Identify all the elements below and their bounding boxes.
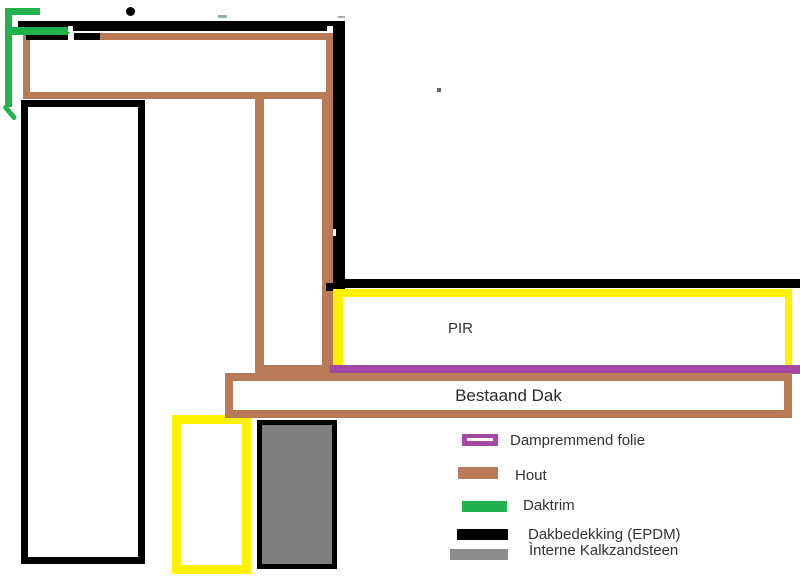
paint-dash: [218, 15, 227, 18]
daktrim-lower-arm: [5, 27, 70, 35]
membrane-gap: [68, 33, 74, 40]
daktrim-gap: [68, 26, 73, 32]
wood-vertical-beam: [255, 99, 333, 374]
outer-wall-outline: [21, 100, 145, 564]
epdm-roof-membrane: [333, 279, 800, 288]
legend-swatch-dakbedekking-epdm: [457, 529, 508, 540]
pir-insulation-block: [172, 415, 251, 574]
epdm-vertical-membrane: [333, 21, 345, 291]
daktrim-top-arm: [5, 8, 40, 15]
daktrim-vertical: [5, 8, 12, 107]
legend-label-dampremmend-folie: Dampremmend folie: [510, 433, 645, 449]
legend-label-interne-kalkzandsteen: Ìnterne Kalkzandsteen: [529, 543, 678, 559]
roof-detail-diagram: PIR Bestaand Dak Dampremmend folie Hout …: [0, 0, 800, 576]
membrane-notch: [333, 229, 336, 236]
existing-roof-layer: Bestaand Dak: [225, 373, 792, 418]
pir-label: PIR: [448, 321, 473, 337]
legend-swatch-hout: [458, 467, 498, 479]
wood-top-beam: [23, 33, 333, 99]
kalkzandsteen-wall: [257, 420, 337, 569]
paint-dot: [126, 7, 135, 16]
legend-swatch-dampremmend-folie: [462, 434, 498, 446]
legend-label-dakbedekking-epdm: Dakbedekking (EPDM): [528, 527, 681, 543]
legend-label-hout: Hout: [515, 468, 547, 484]
legend-swatch-daktrim: [462, 501, 507, 512]
swatch-stripe: [467, 438, 493, 441]
existing-roof-label: Bestaand Dak: [455, 388, 562, 404]
paint-dot: [437, 88, 441, 92]
legend-swatch-interne-kalkzandsteen: [450, 549, 508, 560]
legend-label-daktrim: Daktrim: [523, 498, 575, 514]
pir-insulation-layer: PIR: [333, 289, 792, 367]
paint-dash: [338, 16, 345, 18]
membrane-corner-notch: [327, 26, 333, 32]
